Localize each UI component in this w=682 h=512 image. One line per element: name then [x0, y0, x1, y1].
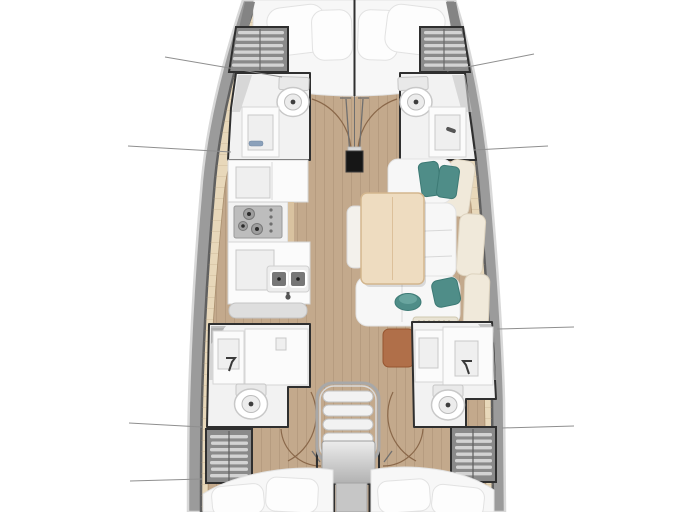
- sink-drain: [296, 277, 300, 281]
- port-forward-head: [228, 73, 310, 160]
- mast-section: [346, 151, 363, 172]
- companionway-step: [323, 391, 373, 402]
- counter-drain: [276, 338, 286, 350]
- locker-slat: [238, 31, 284, 34]
- locker-slat: [424, 57, 467, 60]
- locker-slat: [456, 453, 492, 456]
- locker-slat: [424, 31, 462, 34]
- settee-back-cushion: [456, 213, 486, 277]
- yacht-floorplan: [0, 0, 682, 512]
- pillow: [211, 483, 265, 512]
- starboard-forward-head: [398, 73, 476, 160]
- companionway-step: [323, 419, 373, 430]
- sink-drain: [277, 277, 281, 281]
- toilet-drain: [414, 100, 419, 105]
- locker-slat: [424, 51, 466, 54]
- teal-decor-top: [399, 294, 417, 304]
- stove-knob: [269, 229, 272, 232]
- locker-slat: [235, 44, 283, 47]
- sink-basin: [455, 341, 478, 376]
- toilet-drain: [291, 100, 296, 105]
- burner-center: [255, 227, 259, 231]
- galley-front-edge: [229, 303, 307, 318]
- stove-knob: [269, 208, 272, 211]
- sink-basin: [435, 115, 460, 150]
- locker-slat: [232, 64, 284, 67]
- locker-slat: [424, 64, 468, 67]
- pillow: [431, 483, 486, 512]
- burner-center: [241, 224, 245, 228]
- toilet-drain: [249, 402, 254, 407]
- stove-knob: [269, 215, 272, 218]
- burner-center: [247, 212, 251, 216]
- faucet: [249, 141, 263, 146]
- mast-post: [346, 147, 363, 172]
- stove-trim: [288, 202, 294, 242]
- toilet-drain: [446, 403, 451, 408]
- companionway-passage: [336, 483, 367, 512]
- locker-slat: [233, 57, 283, 60]
- locker-slat: [456, 466, 492, 469]
- stove-knob: [269, 222, 272, 225]
- shower-pan: [218, 339, 239, 369]
- cabinet-door: [236, 167, 270, 198]
- yacht-floorplan-page: [0, 0, 682, 512]
- companionway-step: [323, 405, 373, 416]
- pillow: [311, 9, 353, 60]
- shower-pan: [419, 338, 438, 368]
- locker-slat: [234, 51, 284, 54]
- nav-seat: [383, 329, 414, 367]
- pillow: [377, 478, 431, 512]
- head-counter: [245, 329, 308, 385]
- teal-cushion: [436, 165, 460, 199]
- teal-pillow: [431, 277, 462, 309]
- locker-slat: [456, 440, 492, 443]
- pillow: [265, 477, 319, 512]
- faucet: [285, 294, 290, 299]
